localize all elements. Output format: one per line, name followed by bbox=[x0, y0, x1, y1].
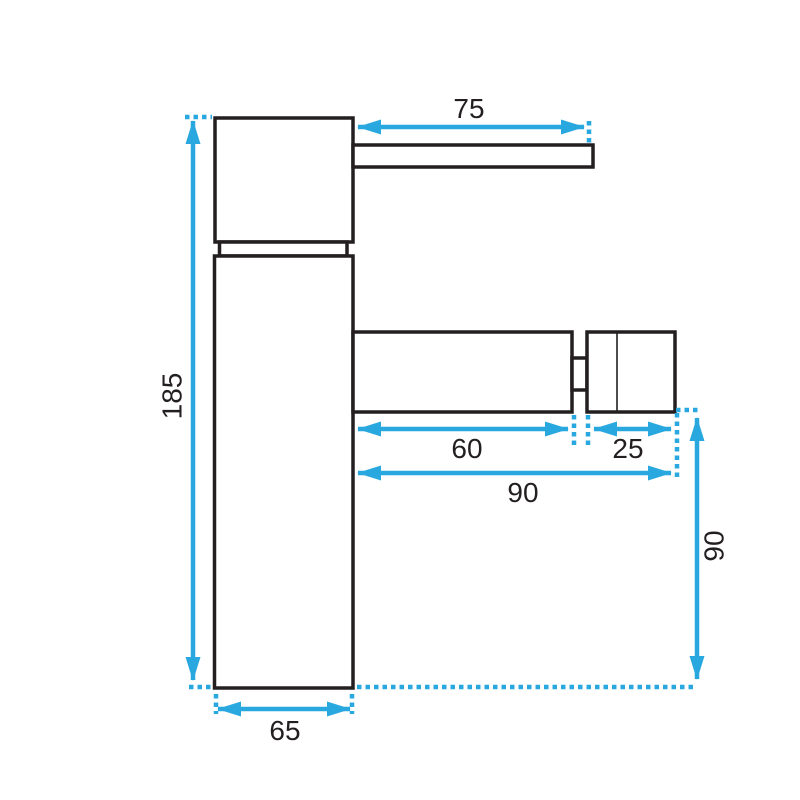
dimension-outlet-height: 90 bbox=[676, 410, 730, 679]
faucet-aerator bbox=[587, 332, 675, 412]
faucet-spout bbox=[353, 332, 572, 412]
dimension-label-75: 75 bbox=[453, 93, 484, 124]
dimension-label-65: 65 bbox=[269, 715, 300, 746]
technical-drawing-canvas: 75 185 60 25 90 90 bbox=[0, 0, 800, 800]
faucet-outline bbox=[215, 118, 676, 688]
dimension-spout-reach: 90 bbox=[358, 473, 671, 508]
dimension-total-height: 185 bbox=[157, 117, 213, 680]
dimension-label-25: 25 bbox=[612, 433, 643, 464]
dimension-spout-length: 60 bbox=[358, 415, 574, 464]
faucet-spout-neck bbox=[572, 358, 587, 390]
faucet-cartridge-head bbox=[215, 118, 353, 242]
faucet-body bbox=[215, 256, 354, 688]
dimension-aerator-width: 25 bbox=[588, 415, 671, 464]
dimension-label-60: 60 bbox=[451, 433, 482, 464]
dimension-handle-length: 75 bbox=[358, 93, 589, 146]
dimension-label-185: 185 bbox=[157, 373, 188, 420]
faucet-dimension-diagram: 75 185 60 25 90 90 bbox=[0, 0, 800, 800]
faucet-collar-ring bbox=[220, 242, 348, 256]
faucet-handle-lever bbox=[353, 145, 593, 167]
dimension-label-90-vertical: 90 bbox=[699, 530, 730, 561]
dimension-label-90-horizontal: 90 bbox=[507, 477, 538, 508]
dimension-base-width: 65 bbox=[216, 694, 352, 746]
